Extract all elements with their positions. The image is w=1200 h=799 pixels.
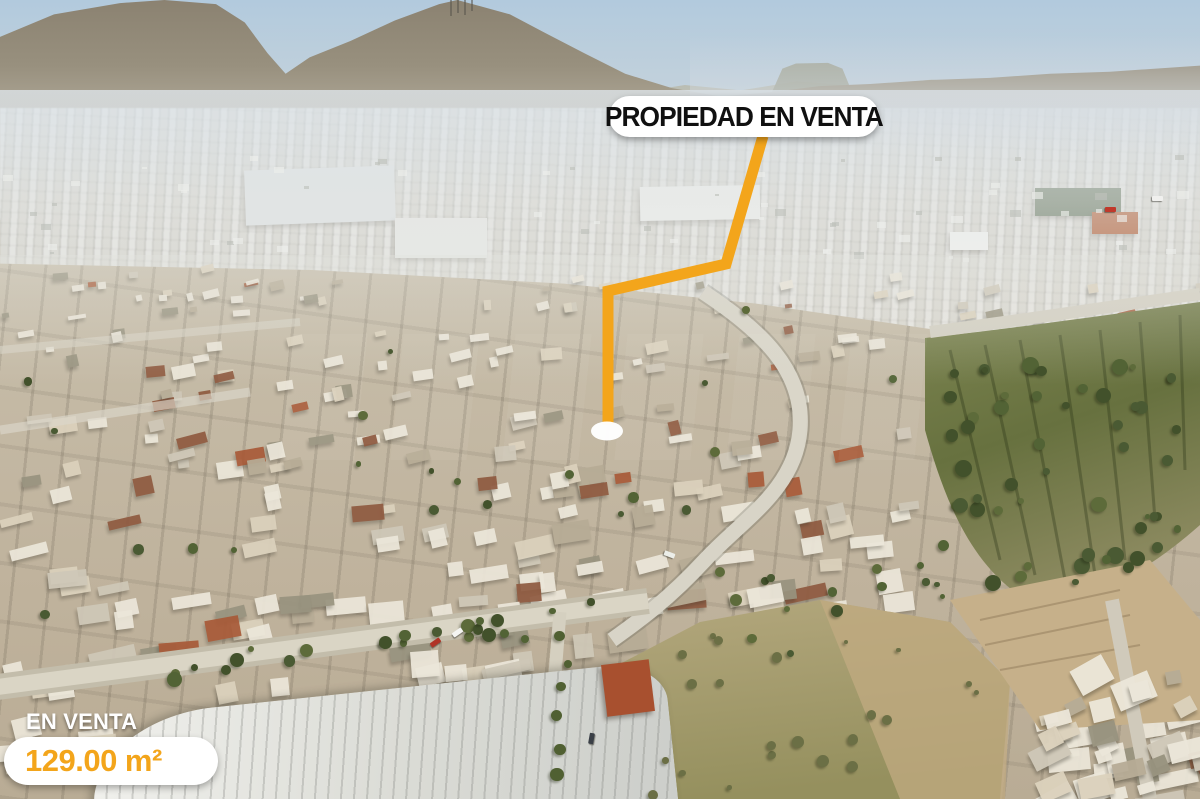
callout-label: PROPIEDAD EN VENTA <box>609 96 879 137</box>
status-label: EN VENTA <box>26 709 137 735</box>
callout-text: PROPIEDAD EN VENTA <box>605 101 883 133</box>
area-badge: 129.00 m² <box>4 737 218 785</box>
area-value: 129.00 m² <box>4 743 162 779</box>
aerial-photo: PROPIEDAD EN VENTA EN VENTA 129.00 m² <box>0 0 1200 799</box>
property-marker-dot <box>591 422 623 441</box>
callout-leader <box>0 0 1200 799</box>
leader-line <box>608 136 763 425</box>
